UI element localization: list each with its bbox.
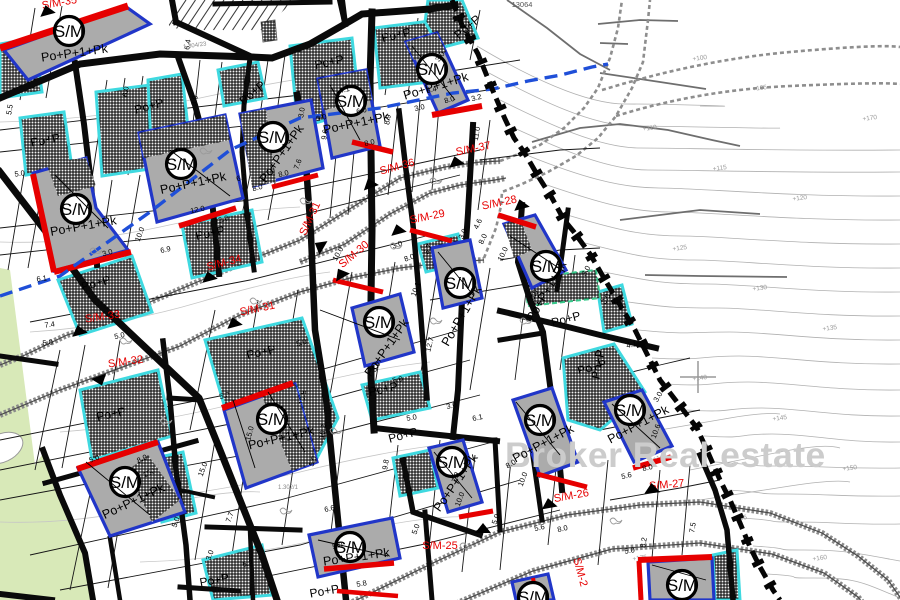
svg-text:S/M: S/M (257, 410, 287, 429)
svg-text:S/M: S/M (667, 576, 697, 595)
svg-text:9.8: 9.8 (380, 459, 391, 471)
svg-text:S/M: S/M (525, 411, 555, 430)
svg-text:S/M: S/M (61, 200, 91, 219)
svg-text:6.1: 6.1 (36, 273, 48, 283)
svg-text:S/M: S/M (518, 588, 548, 600)
svg-text:5.5: 5.5 (4, 104, 15, 116)
svg-text:S/M: S/M (110, 473, 140, 492)
svg-text:6.0: 6.0 (120, 86, 131, 98)
svg-text:5.0: 5.0 (624, 545, 636, 556)
svg-text:9.6: 9.6 (319, 129, 330, 141)
svg-text:5.8: 5.8 (356, 578, 368, 589)
svg-text:7.4: 7.4 (44, 319, 56, 329)
svg-text:S/M: S/M (54, 22, 84, 41)
svg-text:3.0: 3.0 (189, 95, 200, 107)
svg-text:6.2: 6.2 (242, 558, 254, 569)
svg-text:5.0: 5.0 (42, 337, 54, 347)
svg-text:13064: 13064 (512, 0, 533, 9)
svg-text:7.5: 7.5 (687, 522, 698, 534)
svg-text:8.2: 8.2 (638, 537, 649, 549)
svg-text:S/M: S/M (166, 155, 196, 174)
svg-text:S/M: S/M (364, 313, 394, 332)
svg-text:3.0: 3.0 (296, 107, 307, 119)
svg-text:5.0: 5.0 (406, 412, 418, 423)
svg-text:S/M-25: S/M-25 (422, 540, 457, 552)
svg-text:1.302/1: 1.302/1 (278, 485, 299, 491)
svg-text:8.9: 8.9 (382, 114, 393, 126)
svg-text:5.0: 5.0 (14, 168, 26, 178)
